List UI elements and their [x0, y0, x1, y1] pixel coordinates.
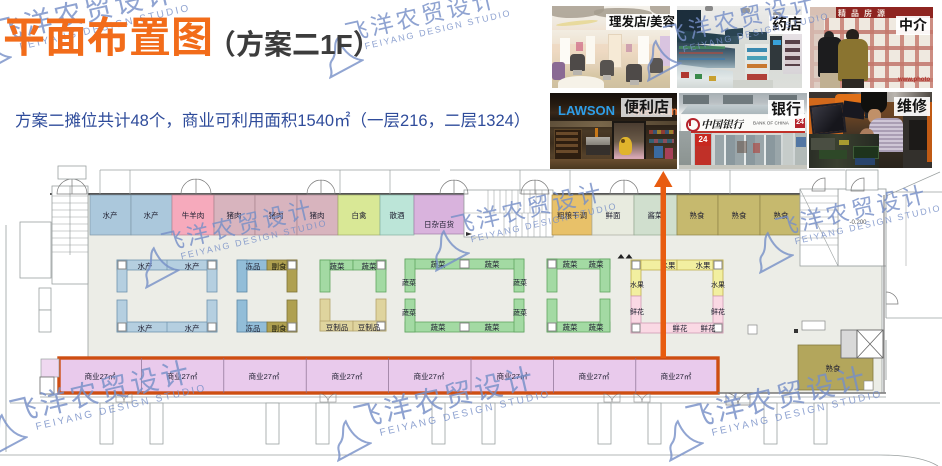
- svg-text:商业27㎡: 商业27㎡: [167, 371, 198, 381]
- svg-text:鲜面: 鲜面: [606, 210, 621, 220]
- svg-text:日杂百货: 日杂百货: [424, 219, 454, 229]
- svg-text:鲜花: 鲜花: [630, 307, 644, 316]
- svg-text:水产: 水产: [185, 261, 200, 271]
- svg-text:豆制品: 豆制品: [326, 322, 349, 332]
- svg-text:冻品: 冻品: [246, 261, 261, 271]
- svg-text:鲜花: 鲜花: [711, 307, 725, 316]
- svg-text:熟食: 熟食: [774, 210, 789, 220]
- svg-text:副食: 副食: [272, 261, 287, 271]
- svg-text:水果: 水果: [630, 280, 644, 289]
- svg-text:-0.200: -0.200: [849, 220, 867, 226]
- svg-text:蔬菜: 蔬菜: [330, 261, 345, 271]
- svg-text:商业27㎡: 商业27㎡: [249, 371, 280, 381]
- svg-text:熟食: 熟食: [732, 210, 747, 220]
- svg-text:商业27㎡: 商业27㎡: [661, 371, 692, 381]
- svg-text:副食: 副食: [272, 323, 287, 333]
- svg-text:水产: 水产: [185, 323, 200, 333]
- svg-text:散酒: 散酒: [390, 210, 405, 220]
- svg-text:蔬菜: 蔬菜: [431, 259, 446, 269]
- svg-text:熟食: 熟食: [690, 210, 705, 220]
- svg-text:豆制品: 豆制品: [358, 322, 381, 332]
- svg-text:粗粮干调: 粗粮干调: [557, 210, 587, 220]
- svg-text:蔬菜: 蔬菜: [402, 278, 416, 287]
- svg-text:鲜花: 鲜花: [701, 323, 716, 333]
- svg-text:鲜花: 鲜花: [673, 323, 688, 333]
- svg-text:蔬菜: 蔬菜: [485, 322, 500, 332]
- svg-text:水产: 水产: [103, 210, 118, 220]
- svg-text:白禽: 白禽: [352, 210, 367, 220]
- svg-text:熟食: 熟食: [826, 363, 841, 373]
- svg-text:商业27㎡: 商业27㎡: [497, 371, 528, 381]
- svg-text:蔬菜: 蔬菜: [362, 261, 377, 271]
- svg-text:商业27㎡: 商业27㎡: [85, 371, 116, 381]
- svg-text:商业27㎡: 商业27㎡: [332, 371, 363, 381]
- svg-text:水产: 水产: [138, 261, 153, 271]
- svg-text:水产: 水产: [138, 323, 153, 333]
- svg-text:水果: 水果: [696, 260, 711, 270]
- svg-text:商业27㎡: 商业27㎡: [414, 371, 445, 381]
- svg-text:蔬菜: 蔬菜: [513, 278, 527, 287]
- svg-text:猪肉: 猪肉: [310, 210, 325, 220]
- svg-text:水产: 水产: [144, 210, 159, 220]
- svg-text:蔬菜: 蔬菜: [513, 308, 527, 317]
- svg-text:商业27㎡: 商业27㎡: [579, 371, 610, 381]
- svg-text:蔬菜: 蔬菜: [589, 322, 604, 332]
- svg-text:蔬菜: 蔬菜: [485, 259, 500, 269]
- svg-text:猪肉: 猪肉: [269, 210, 284, 220]
- svg-text:蔬菜: 蔬菜: [402, 308, 416, 317]
- svg-text:冻品: 冻品: [246, 323, 261, 333]
- svg-text:蔬菜: 蔬菜: [589, 259, 604, 269]
- svg-text:蔬菜: 蔬菜: [563, 259, 578, 269]
- svg-text:牛羊肉: 牛羊肉: [182, 210, 205, 220]
- svg-text:水果: 水果: [711, 280, 725, 289]
- svg-text:蔬菜: 蔬菜: [563, 322, 578, 332]
- svg-text:猪肉: 猪肉: [227, 210, 242, 220]
- svg-text:蔬菜: 蔬菜: [431, 322, 446, 332]
